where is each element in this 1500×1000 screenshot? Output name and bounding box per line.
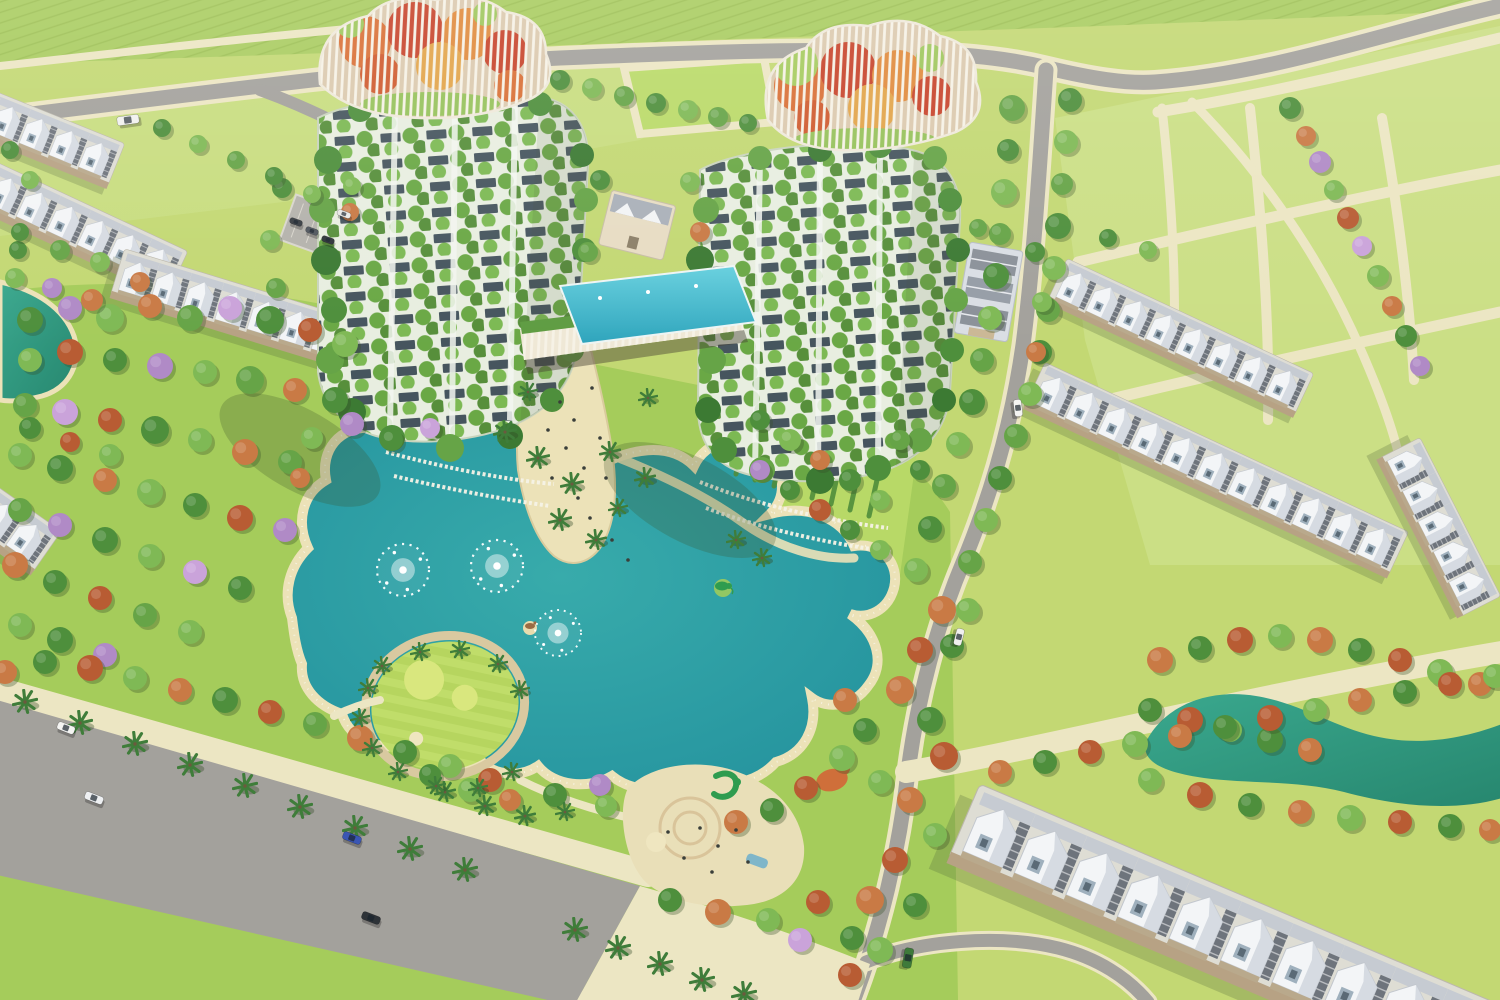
tower-foliage [436,434,464,462]
sand-pit [646,832,666,852]
person [598,436,602,440]
aerial-rendering [0,0,1500,1000]
person [716,844,720,848]
tower-foliage [311,245,341,275]
person [626,558,630,562]
person [588,516,592,520]
person [610,538,614,542]
tower-foliage [314,146,342,174]
person [604,476,608,480]
fountain [471,540,523,592]
person [546,428,550,432]
tower-foliage [938,188,962,212]
tower-foliage [540,388,564,412]
person [734,828,738,832]
scene-canvas [0,0,1500,1000]
person [666,830,670,834]
person [746,860,750,864]
person [564,446,568,450]
tower-foliage [865,455,891,481]
deer-islet [523,621,537,635]
pool-float [646,290,650,294]
tower-foliage [570,143,594,167]
pool-float [598,296,602,300]
tower-foliage [946,238,970,262]
person [576,496,580,500]
pool-float [694,284,698,288]
tower-foliage [923,146,947,170]
person [590,386,594,390]
fountain [377,544,429,596]
tower-foliage [574,188,598,212]
tower-foliage [944,288,968,312]
person [550,476,554,480]
person [682,856,686,860]
tower-foliage [940,338,964,362]
fountain [535,610,581,656]
tower-foliage [711,437,737,463]
tower-foliage [693,197,719,223]
tower-foliage [748,146,772,170]
person [582,466,586,470]
person [698,826,702,830]
person [710,870,714,874]
tower-foliage [932,388,956,412]
tower-foliage [698,346,726,374]
tower-foliage [695,397,721,423]
person [572,418,576,422]
tower-foliage [321,297,347,323]
person [558,400,562,404]
